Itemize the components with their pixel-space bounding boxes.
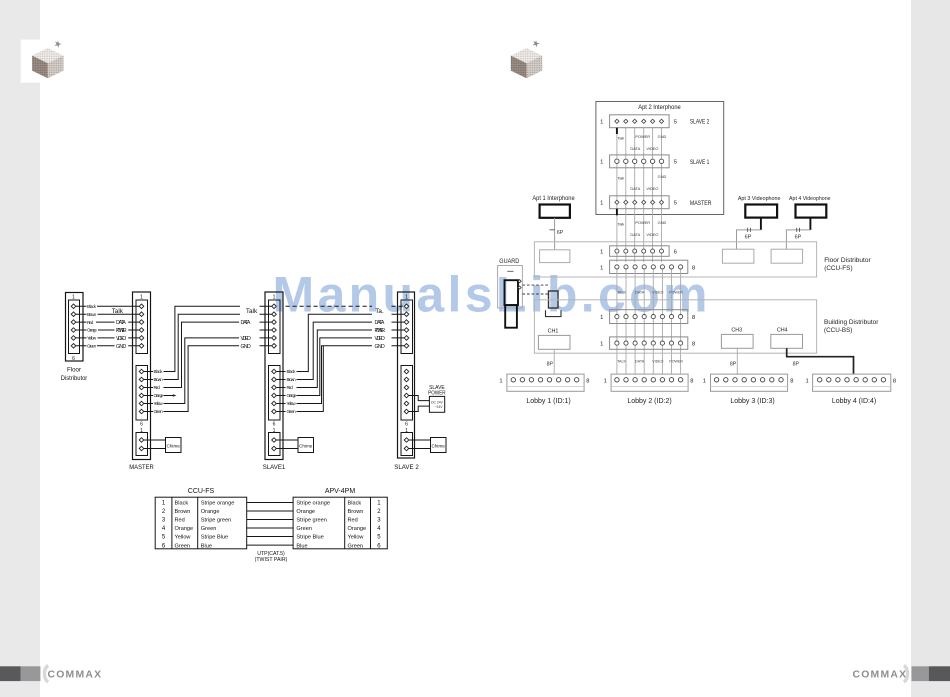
svg-text:Red: Red: [287, 385, 294, 390]
svg-text:Chime: Chime: [299, 443, 313, 448]
svg-text:Lobby 1 (ID:1): Lobby 1 (ID:1): [526, 398, 570, 405]
svg-text:1: 1: [805, 378, 808, 384]
svg-text:VIDEO: VIDEO: [646, 146, 658, 151]
svg-text:Black: Black: [87, 304, 97, 309]
svg-text:Stripe green: Stripe green: [201, 518, 231, 524]
svg-text:Green: Green: [296, 526, 312, 532]
svg-text:Distributor: Distributor: [61, 375, 88, 382]
svg-text:~24V: ~24V: [434, 405, 443, 409]
svg-text:VIDEO: VIDEO: [652, 360, 663, 364]
svg-text:Blue: Blue: [201, 543, 212, 549]
svg-text:8: 8: [692, 342, 695, 348]
svg-text:POWER: POWER: [635, 220, 650, 225]
svg-text:8: 8: [692, 315, 695, 321]
svg-text:Talk: Talk: [617, 221, 624, 226]
svg-text:Stripe orange: Stripe orange: [296, 501, 330, 507]
svg-text:DATA: DATA: [116, 320, 126, 326]
svg-text:CCU-FS: CCU-FS: [188, 488, 215, 495]
svg-text:6: 6: [405, 422, 408, 428]
svg-text:DATA: DATA: [630, 146, 640, 151]
svg-text:Stripe Blue: Stripe Blue: [201, 535, 228, 541]
svg-text:8: 8: [690, 378, 693, 384]
svg-text:Black: Black: [154, 369, 164, 374]
svg-text:Orange: Orange: [175, 526, 194, 532]
svg-text:Black: Black: [175, 501, 189, 507]
svg-text:Orange: Orange: [348, 526, 367, 532]
svg-text:Floor Distributor: Floor Distributor: [824, 257, 871, 264]
svg-text:Green: Green: [87, 344, 97, 349]
svg-text:Stripe Blue: Stripe Blue: [296, 535, 323, 541]
svg-text:Stripe green: Stripe green: [296, 518, 326, 524]
svg-text:Lobby 2 (ID:2): Lobby 2 (ID:2): [627, 398, 671, 405]
svg-text:Green: Green: [154, 409, 164, 414]
svg-text:GND: GND: [658, 220, 667, 225]
svg-text:Brown: Brown: [175, 509, 191, 515]
svg-text:VIDEO: VIDEO: [116, 336, 126, 342]
svg-text:1: 1: [499, 378, 502, 384]
svg-text:TALK: TALK: [617, 360, 626, 364]
svg-text:Orange: Orange: [154, 393, 165, 398]
svg-text:(TWIST PAIR): (TWIST PAIR): [255, 557, 288, 563]
svg-text:Brown: Brown: [348, 509, 364, 515]
svg-text:Lobby 4 (ID:4): Lobby 4 (ID:4): [832, 398, 876, 405]
svg-text:Lobby 3 (ID:3): Lobby 3 (ID:3): [730, 398, 774, 405]
svg-text:POWER: POWER: [669, 360, 683, 364]
svg-text:POWER: POWER: [635, 134, 650, 139]
svg-text:GND: GND: [658, 174, 667, 179]
svg-text:VIDEO: VIDEO: [646, 232, 658, 237]
svg-text:1: 1: [140, 428, 143, 434]
svg-text:Talk: Talk: [246, 308, 258, 315]
svg-text:1: 1: [604, 378, 607, 384]
svg-text:1: 1: [405, 294, 408, 300]
svg-text:Yellow: Yellow: [287, 401, 297, 406]
svg-text:CH1: CH1: [548, 329, 559, 335]
svg-text:MASTER: MASTER: [129, 464, 154, 471]
svg-text:Talk: Talk: [617, 175, 624, 180]
svg-text:SLAVE1: SLAVE1: [263, 464, 286, 471]
svg-text:(CCU-FS): (CCU-FS): [824, 265, 852, 272]
svg-text:Red: Red: [175, 518, 185, 524]
svg-text:TALK: TALK: [617, 290, 626, 294]
svg-text:Orange: Orange: [201, 509, 220, 515]
svg-text:Green: Green: [348, 543, 364, 549]
svg-text:Yellow: Yellow: [175, 535, 192, 541]
svg-text:8P: 8P: [793, 361, 800, 367]
svg-text:DATA: DATA: [635, 360, 645, 364]
svg-text:Green: Green: [287, 409, 297, 414]
svg-text:1: 1: [405, 428, 408, 434]
svg-text:Building Distributor: Building Distributor: [824, 319, 879, 326]
svg-text:Apt 4 Videophone: Apt 4 Videophone: [789, 196, 831, 202]
svg-text:Yellow: Yellow: [348, 535, 365, 541]
svg-text:G N D: G N D: [241, 344, 252, 350]
svg-text:1: 1: [703, 378, 706, 384]
svg-text:POWER: POWER: [116, 328, 127, 334]
svg-text:UTP(CAT.5): UTP(CAT.5): [257, 551, 285, 557]
svg-text:DATA: DATA: [241, 320, 251, 326]
svg-text:Talk: Talk: [617, 135, 624, 140]
svg-text:APV-4PM: APV-4PM: [325, 488, 356, 495]
svg-text:POWER: POWER: [428, 391, 446, 397]
svg-text:Floor: Floor: [67, 367, 81, 374]
svg-text:SLAVE 2: SLAVE 2: [394, 464, 419, 471]
svg-text:(CCU-BS): (CCU-BS): [824, 327, 852, 334]
svg-text:Brown: Brown: [87, 312, 97, 317]
svg-text:1: 1: [600, 315, 603, 321]
svg-text:6: 6: [273, 422, 276, 428]
svg-text:Chime: Chime: [432, 443, 446, 448]
svg-text:POWER: POWER: [669, 290, 683, 294]
svg-text:6: 6: [72, 356, 75, 362]
svg-text:Green: Green: [201, 526, 217, 532]
svg-text:6P: 6P: [795, 235, 802, 241]
svg-text:Red: Red: [348, 518, 358, 524]
svg-text:Ta.: Ta.: [375, 308, 384, 315]
svg-text:Red: Red: [87, 320, 94, 325]
svg-text:1: 1: [140, 294, 143, 300]
svg-text:8: 8: [790, 378, 793, 384]
svg-text:GUARD: GUARD: [499, 258, 519, 265]
svg-text:Brown: Brown: [287, 377, 297, 382]
svg-text:VIDEO: VIDEO: [241, 336, 251, 342]
svg-text:DATA: DATA: [375, 320, 385, 326]
svg-text:Apt 3 Videophone: Apt 3 Videophone: [738, 196, 781, 202]
svg-text:Brown: Brown: [154, 377, 164, 382]
svg-text:Black: Black: [348, 501, 362, 507]
svg-text:1: 1: [600, 120, 603, 126]
svg-text:Black: Black: [287, 369, 297, 374]
svg-text:Orange: Orange: [287, 393, 298, 398]
svg-text:Apt 2 Interphone: Apt 2 Interphone: [638, 105, 681, 111]
svg-text:Chime: Chime: [167, 443, 181, 448]
svg-text:1: 1: [600, 342, 603, 348]
svg-text:8P: 8P: [730, 361, 737, 367]
svg-text:CH4: CH4: [777, 328, 788, 334]
svg-text:CH3: CH3: [731, 328, 742, 334]
svg-text:1: 1: [600, 201, 603, 207]
svg-text:5: 5: [674, 160, 677, 166]
svg-text:6P: 6P: [745, 235, 752, 241]
svg-text:Yellow: Yellow: [154, 401, 164, 406]
svg-text:1: 1: [273, 428, 276, 434]
svg-text:8: 8: [893, 378, 896, 384]
svg-text:MASTER: MASTER: [690, 201, 712, 207]
svg-text:5: 5: [674, 120, 677, 126]
svg-text:6P: 6P: [557, 230, 564, 236]
svg-text:8P: 8P: [547, 361, 554, 367]
svg-text:SLAVE 1: SLAVE 1: [690, 160, 710, 166]
svg-text:VIDEO: VIDEO: [375, 336, 385, 342]
svg-text:DATA: DATA: [630, 232, 640, 237]
svg-text:Yellow: Yellow: [87, 336, 97, 341]
svg-text:1: 1: [72, 294, 75, 300]
svg-text:DATA: DATA: [635, 290, 645, 294]
svg-text:VIDEO: VIDEO: [652, 290, 663, 294]
svg-text:Red: Red: [154, 385, 161, 390]
svg-text:G N D: G N D: [375, 344, 386, 350]
svg-text:POWER: POWER: [375, 328, 386, 334]
svg-text:Talk: Talk: [112, 308, 124, 315]
svg-text:Stripe orange: Stripe orange: [201, 501, 235, 507]
svg-text:G N D: G N D: [116, 344, 127, 350]
svg-text:VIDEO: VIDEO: [646, 186, 658, 191]
svg-text:5: 5: [674, 201, 677, 207]
svg-text:SLAVE 2: SLAVE 2: [690, 120, 710, 126]
svg-text:8: 8: [692, 265, 695, 271]
svg-text:Apt 1 Interphone: Apt 1 Interphone: [532, 196, 575, 202]
svg-text:Orange: Orange: [87, 328, 98, 333]
svg-text:6: 6: [140, 422, 143, 428]
svg-text:1: 1: [600, 249, 603, 255]
svg-text:6: 6: [674, 249, 677, 255]
svg-text:1: 1: [600, 160, 603, 166]
svg-text:1: 1: [600, 265, 603, 271]
svg-text:1: 1: [273, 294, 276, 300]
svg-text:DATA: DATA: [630, 186, 640, 191]
svg-text:Green: Green: [175, 543, 191, 549]
svg-text:Orange: Orange: [296, 509, 315, 515]
svg-text:8: 8: [586, 378, 589, 384]
svg-text:Blue: Blue: [296, 543, 307, 549]
svg-text:GND: GND: [658, 134, 667, 139]
